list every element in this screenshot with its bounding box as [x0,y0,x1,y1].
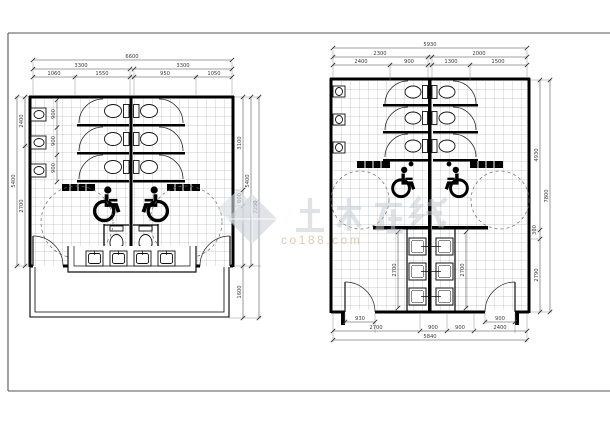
dim-label: 7250 [253,200,259,213]
dim-label: 1300 [444,59,457,65]
dim-label: 2300 [373,51,386,57]
dim-label: 2400 [354,59,367,65]
dim-label: 900 [495,316,505,322]
dim-label: 1060 [47,71,60,77]
dim-label: 2000 [472,51,485,57]
dim-label: 2700 [460,263,466,276]
dim-label: 1050 [207,71,220,77]
dim-label: 5400 [245,174,251,187]
left-plan: 6600 3300 3300 1060 1550 950 1050 5400 2… [11,54,261,320]
dim-label: 950 [160,71,170,77]
dim-label: 2790 [534,268,540,281]
dim-label: 900 [428,325,438,331]
dim-label: 900 [455,325,465,331]
dim-label: 900 [51,163,57,173]
center-divider-wall [130,97,133,262]
dim-label: 900 [404,59,414,65]
restroom-plan-drawing: 6600 3300 3300 1060 1550 950 1050 5400 2… [0,0,610,432]
dim-label: 3300 [74,63,87,69]
right-plan: 5930 2300 2000 2400 900 1300 1500 930 90… [330,42,552,342]
cad-drawing-canvas: 6600 3300 3300 1060 1550 950 1050 5400 2… [0,0,610,432]
dim-label: 2400 [19,114,25,127]
dim-label: 2400 [493,325,506,331]
dim-label: 1500 [491,59,504,65]
center-divider-wall [428,79,432,312]
dim-label: 1600 [237,285,243,298]
dim-label: 2700 [19,199,25,212]
dim-label: 2700 [369,325,382,331]
washbasin-icons [31,108,46,177]
dim-label: 6600 [125,54,138,60]
floor-drain [447,162,452,167]
dim-label: 3100 [237,136,243,149]
dim-label: 7800 [544,189,550,202]
urinal-icons [333,86,345,153]
dim-label: 5400 [11,174,17,187]
dim-label: 900 [51,136,57,146]
dim-label: 4930 [534,148,540,161]
dim-label: 900 [51,109,57,119]
dim-label: 5840 [423,334,436,340]
vanity-counter [68,246,196,272]
dim-label: 2700 [392,263,398,276]
dim-label: 3300 [176,63,189,69]
dim-label: 930 [355,316,365,322]
dim-label: 600 [237,193,243,203]
floor-drain [409,162,414,167]
dim-label: 1550 [95,71,108,77]
dim-label: 5930 [423,42,436,48]
dim-label: 300 [532,225,538,235]
